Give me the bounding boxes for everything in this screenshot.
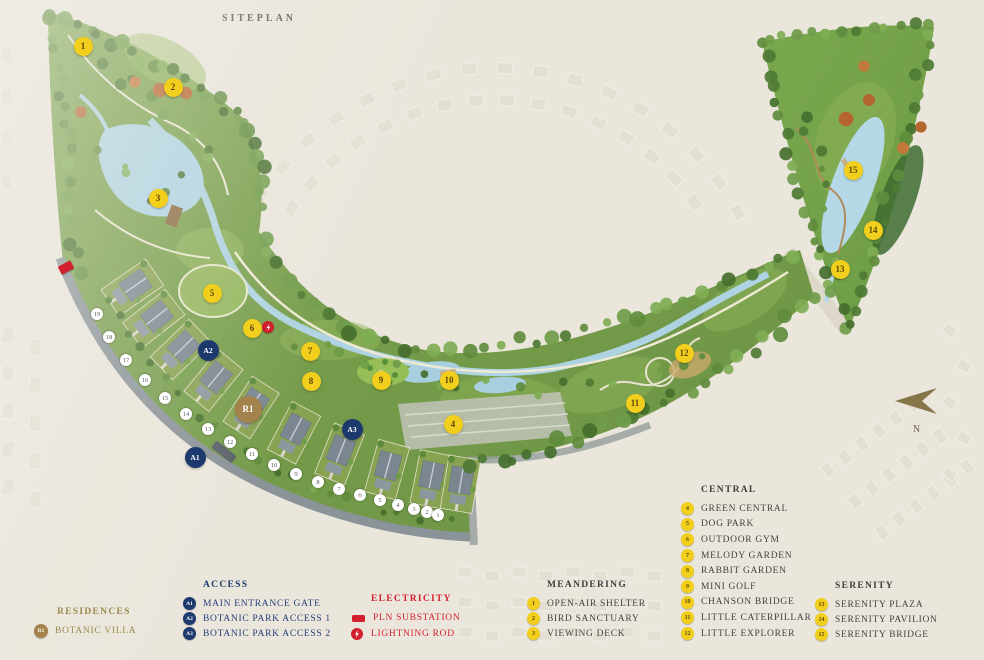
lot-marker-14[interactable]: 14 [180, 408, 192, 420]
legend-item: 1OPEN-AIR SHELTER [527, 596, 646, 611]
lot-marker-4[interactable]: 4 [392, 499, 404, 511]
legend-meandering-header: MEANDERING [547, 580, 646, 590]
lot-marker-5[interactable]: 5 [374, 494, 386, 506]
legend-item: 9MINI GOLF [681, 579, 812, 595]
map-marker-layer: 1918171615141312111098765432112345678910… [0, 0, 984, 660]
legend-item-label: LIGHTNING ROD [371, 629, 455, 639]
map-marker-7[interactable]: 7 [301, 342, 320, 361]
lot-marker-8[interactable]: 8 [312, 476, 324, 488]
legend-badge: 4 [681, 502, 694, 515]
legend-item-label: PLN SUBSTATION [373, 613, 460, 623]
map-marker-4[interactable]: 4 [444, 415, 463, 434]
map-marker-6[interactable]: 6 [243, 319, 262, 338]
legend-item: 10CHANSON BRIDGE [681, 595, 812, 611]
lightning-rod-marker[interactable] [262, 321, 274, 333]
legend-item: 11LITTLE CATERPILLAR [681, 610, 812, 626]
map-marker-A1[interactable]: A1 [185, 447, 206, 468]
legend-item-label: LITTLE EXPLORER [701, 629, 795, 639]
legend-electricity-header: ELECTRICITY [371, 594, 460, 604]
legend-item-label: VIEWING DECK [547, 629, 625, 639]
legend-badge: 8 [681, 565, 694, 578]
lot-marker-12[interactable]: 12 [224, 436, 236, 448]
legend-item: R1BOTANIC VILLA [34, 623, 136, 638]
pln-substation-marker[interactable] [58, 260, 75, 275]
legend-badge: 3 [527, 627, 540, 640]
legend-item: 3VIEWING DECK [527, 626, 646, 641]
legend-item: 7MELODY GARDEN [681, 548, 812, 564]
map-marker-2[interactable]: 2 [164, 78, 183, 97]
legend-item-label: MELODY GARDEN [701, 551, 792, 561]
legend-badge: 14 [815, 613, 828, 626]
legend-badge: 10 [681, 596, 694, 609]
legend-item-label: OUTDOOR GYM [701, 535, 780, 545]
legend-item: A1MAIN ENTRANCE GATE [183, 596, 331, 611]
legend-badge: 6 [681, 533, 694, 546]
legend-item-label: SERENITY PAVILION [835, 615, 938, 625]
legend-item-label: BOTANIC PARK ACCESS 1 [203, 614, 331, 624]
lot-marker-15[interactable]: 15 [159, 392, 171, 404]
legend-item: 6OUTDOOR GYM [681, 532, 812, 548]
lot-marker-11[interactable]: 11 [246, 448, 258, 460]
legend-item-label: CHANSON BRIDGE [701, 597, 794, 607]
map-marker-5[interactable]: 5 [203, 284, 222, 303]
lot-marker-1[interactable]: 1 [432, 509, 444, 521]
legend-badge: 1 [527, 597, 540, 610]
legend-badge: 2 [527, 612, 540, 625]
legend-item: 4GREEN CENTRAL [681, 501, 812, 517]
legend-item-label: RABBIT GARDEN [701, 566, 787, 576]
legend-item-label: MAIN ENTRANCE GATE [203, 599, 321, 609]
lot-marker-16[interactable]: 16 [139, 374, 151, 386]
legend-badge: 7 [681, 549, 694, 562]
legend-badge: 9 [681, 580, 694, 593]
legend-item-label: BOTANIC PARK ACCESS 2 [203, 629, 331, 639]
lot-marker-9[interactable]: 9 [290, 468, 302, 480]
legend-item-label: LITTLE CATERPILLAR [701, 613, 812, 623]
map-marker-13[interactable]: 13 [831, 260, 850, 279]
legend-item: 13SERENITY PLAZA [815, 597, 938, 612]
map-marker-15[interactable]: 15 [844, 161, 863, 180]
legend-badge: 11 [681, 611, 694, 624]
legend-item-label: SERENITY BRIDGE [835, 630, 929, 640]
lot-marker-6[interactable]: 6 [354, 489, 366, 501]
map-marker-8[interactable]: 8 [302, 372, 321, 391]
legend-meandering: MEANDERING 1OPEN-AIR SHELTER2BIRD SANCTU… [527, 580, 646, 641]
lot-marker-10[interactable]: 10 [268, 459, 280, 471]
map-marker-14[interactable]: 14 [864, 221, 883, 240]
legend-item-label: DOG PARK [701, 519, 754, 529]
legend-item: LIGHTNING ROD [351, 626, 460, 642]
legend-item: 14SERENITY PAVILION [815, 612, 938, 627]
legend-residences-header: RESIDENCES [57, 607, 136, 617]
map-marker-9[interactable]: 9 [372, 371, 391, 390]
legend-item: A2BOTANIC PARK ACCESS 1 [183, 611, 331, 626]
legend-badge: 13 [815, 598, 828, 611]
legend-central-header: CENTRAL [701, 485, 812, 495]
legend-item-label: MINI GOLF [701, 582, 756, 592]
lot-marker-3[interactable]: 3 [408, 503, 420, 515]
legend-item: PLN SUBSTATION [351, 610, 460, 626]
legend-residences: RESIDENCES R1BOTANIC VILLA [34, 607, 136, 638]
legend-item: 5DOG PARK [681, 517, 812, 533]
legend-serenity-header: SERENITY [835, 581, 938, 591]
legend-central: CENTRAL 4GREEN CENTRAL5DOG PARK6OUTDOOR … [681, 485, 812, 641]
map-marker-3[interactable]: 3 [149, 189, 168, 208]
legend-item-label: BIRD SANCTUARY [547, 614, 639, 624]
map-marker-R1[interactable]: R1 [235, 396, 262, 423]
legend-badge: 15 [815, 628, 828, 641]
legend-badge: R1 [34, 624, 48, 638]
siteplan-page: SITEPLAN N 19181716151413121110987654321… [0, 0, 984, 660]
map-marker-A3[interactable]: A3 [342, 419, 363, 440]
legend-item: 15SERENITY BRIDGE [815, 627, 938, 642]
lightning-icon [351, 628, 363, 640]
map-marker-11[interactable]: 11 [626, 394, 645, 413]
legend-item-label: BOTANIC VILLA [55, 626, 136, 636]
legend-badge: A1 [183, 597, 196, 610]
legend-item-label: OPEN-AIR SHELTER [547, 599, 646, 609]
map-marker-12[interactable]: 12 [675, 344, 694, 363]
legend-item-label: SERENITY PLAZA [835, 600, 923, 610]
legend-item: A3BOTANIC PARK ACCESS 2 [183, 626, 331, 641]
legend-item: 2BIRD SANCTUARY [527, 611, 646, 626]
substation-icon [352, 615, 365, 622]
legend-serenity: SERENITY 13SERENITY PLAZA14SERENITY PAVI… [815, 581, 938, 642]
map-marker-10[interactable]: 10 [440, 371, 459, 390]
legend-badge: 5 [681, 518, 694, 531]
lot-marker-19[interactable]: 19 [91, 308, 103, 320]
lot-marker-17[interactable]: 17 [120, 354, 132, 366]
legend-access-header: ACCESS [203, 580, 331, 590]
legend-badge: 12 [681, 627, 694, 640]
legend-item: 12LITTLE EXPLORER [681, 626, 812, 642]
legend-item-label: GREEN CENTRAL [701, 504, 788, 514]
lot-marker-7[interactable]: 7 [333, 483, 345, 495]
map-marker-A2[interactable]: A2 [198, 340, 219, 361]
legend-access: ACCESS A1MAIN ENTRANCE GATEA2BOTANIC PAR… [183, 580, 331, 641]
legend-item: 8RABBIT GARDEN [681, 563, 812, 579]
map-marker-1[interactable]: 1 [74, 37, 93, 56]
legend-badge: A3 [183, 627, 196, 640]
lot-marker-18[interactable]: 18 [103, 331, 115, 343]
lot-marker-13[interactable]: 13 [202, 423, 214, 435]
legend-electricity: ELECTRICITY PLN SUBSTATIONLIGHTNING ROD [351, 594, 460, 642]
legend-badge: A2 [183, 612, 196, 625]
